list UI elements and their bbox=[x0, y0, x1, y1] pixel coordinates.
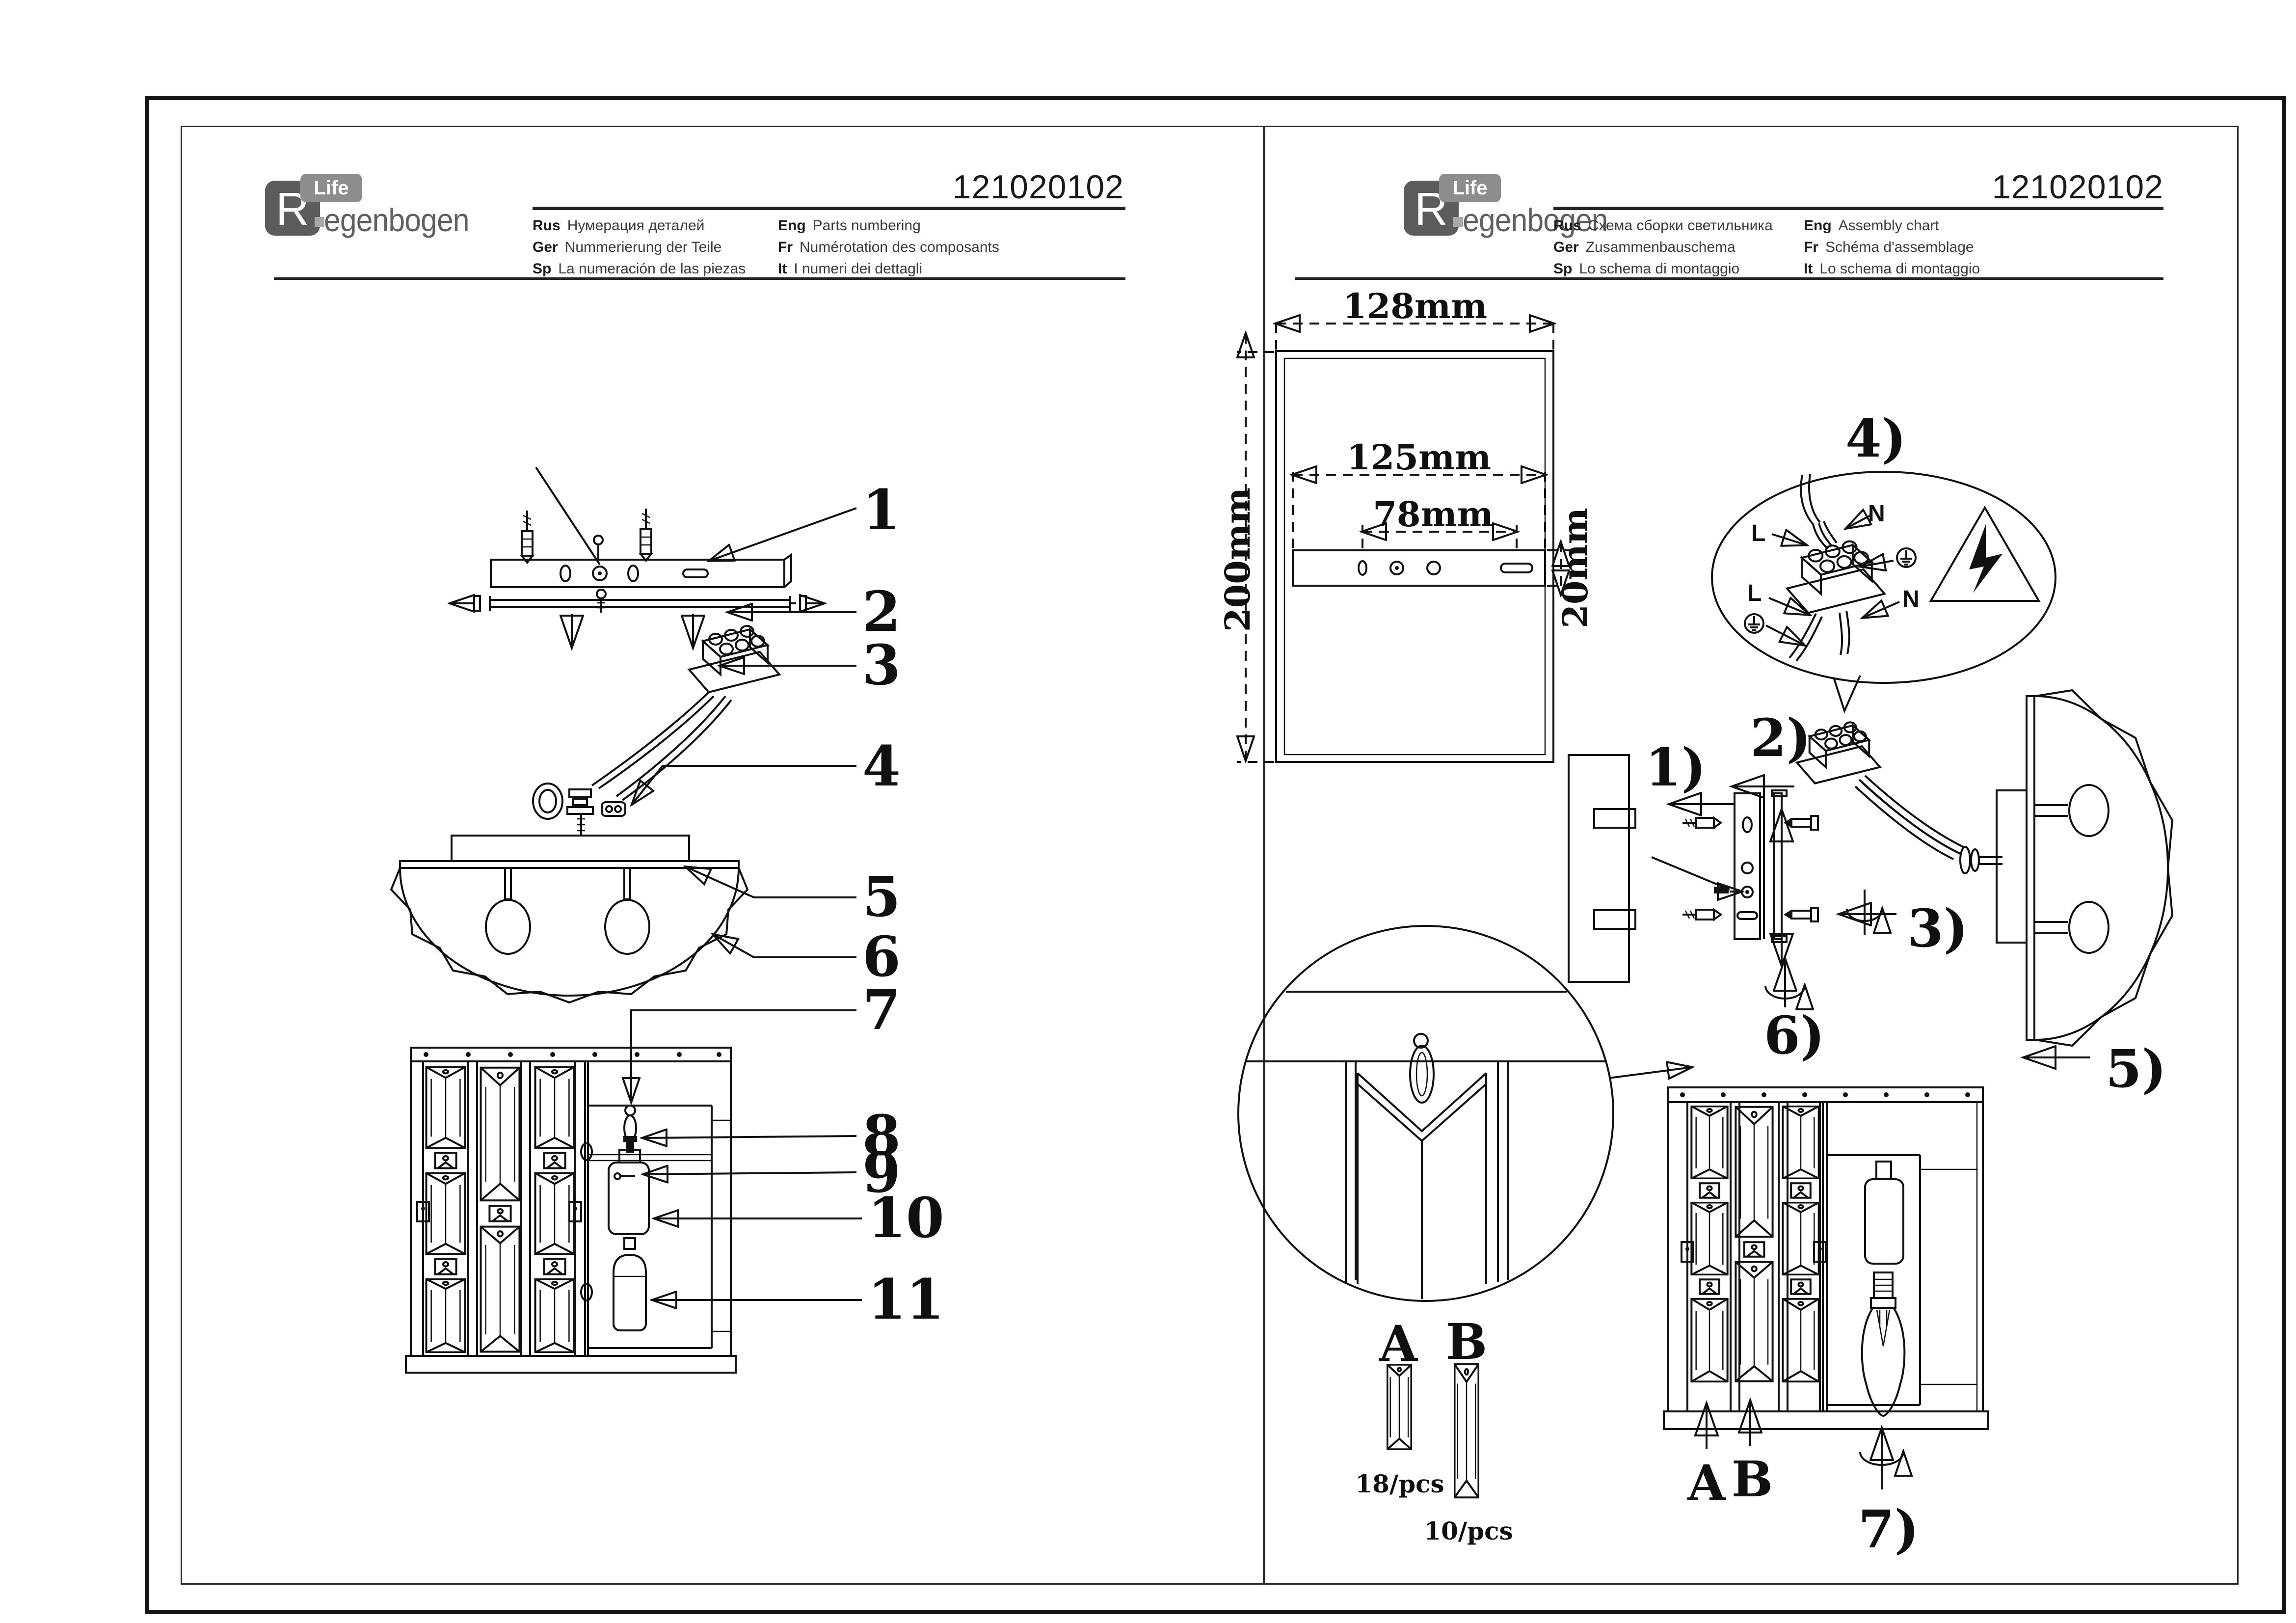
part-label-5: 5 bbox=[862, 865, 901, 929]
step-label-4: 4) bbox=[1845, 407, 1906, 469]
crystal-samples: A B 18/pcs 10/pcs bbox=[1355, 1313, 1513, 1545]
dim-hole-spacing: 78mm bbox=[1373, 494, 1494, 535]
step-screw-top bbox=[1784, 816, 1818, 830]
earth-symbol-top bbox=[1897, 548, 1916, 567]
crystal-b-label: B bbox=[1446, 1313, 1488, 1371]
lamp-front-view-right: A B 7) bbox=[1664, 1087, 1988, 1560]
dim-width: 128mm bbox=[1343, 286, 1487, 326]
step-label-6: 6) bbox=[1764, 1004, 1825, 1066]
part6-glass-dome bbox=[391, 868, 748, 1002]
step-label-5: 5) bbox=[2106, 1038, 2166, 1099]
dim-bar-height: 20mm bbox=[1555, 508, 1596, 628]
part-label-10: 10 bbox=[868, 1186, 944, 1250]
screw-pointer-line bbox=[1652, 857, 1730, 890]
view-b-label: B bbox=[1732, 1450, 1773, 1508]
wire-live-bottom: L bbox=[1747, 580, 1762, 606]
instruction-document: R Life egenbogen 121020102 RusНумерация … bbox=[0, 0, 2296, 1623]
lamp-front-view-left bbox=[406, 1048, 736, 1373]
step-label-7: 7) bbox=[1858, 1498, 1919, 1560]
part11-bulb bbox=[614, 1238, 646, 1330]
part-label-4: 4 bbox=[862, 734, 901, 799]
high-voltage-warning bbox=[1931, 508, 2039, 601]
part7-hanger-ring bbox=[625, 1106, 635, 1115]
earth-symbol-bottom bbox=[1745, 614, 1763, 633]
dim-height: 200mm bbox=[1217, 487, 1258, 632]
view-a-label: A bbox=[1687, 1454, 1726, 1512]
wall-bracket-plate bbox=[1735, 793, 1764, 939]
crystal-a-sample bbox=[1388, 1365, 1412, 1449]
step-label-2: 2) bbox=[1750, 707, 1811, 768]
lamp-keyhole-plate bbox=[1772, 790, 1787, 964]
diagram-art: 1 2 3 4 5 6 7 8 9 10 11 128mm bbox=[0, 0, 2296, 1623]
dimension-drawing: 128mm 200mm 125mm 78mm 20mm bbox=[1217, 286, 1596, 762]
crystal-b-count: 10/pcs bbox=[1424, 1516, 1513, 1545]
part-label-11: 11 bbox=[868, 1268, 944, 1332]
step-label-3: 3) bbox=[1907, 897, 1968, 959]
exploded-view: 1 2 3 4 5 6 7 8 9 10 11 bbox=[391, 467, 944, 1373]
part-label-3: 3 bbox=[862, 633, 901, 698]
dim-bracket-width: 125mm bbox=[1347, 437, 1491, 478]
wire-live-top: L bbox=[1751, 520, 1765, 546]
wire-neutral-bottom: N bbox=[1902, 586, 1920, 612]
wire-neutral-top: N bbox=[1868, 501, 1885, 527]
wall-section bbox=[1569, 755, 1629, 982]
part3-terminal-block bbox=[689, 626, 779, 692]
part2-screws-bar bbox=[451, 596, 824, 646]
part10-socket-cover bbox=[609, 1150, 649, 1234]
step-screw-bottom bbox=[1784, 908, 1818, 921]
step-anchor-top bbox=[1682, 818, 1721, 828]
step-label-1: 1) bbox=[1645, 736, 1706, 798]
part4-connector-set bbox=[533, 784, 625, 837]
wall-anchor-right bbox=[641, 509, 651, 561]
lamp-side-view: 5) bbox=[1997, 690, 2172, 1099]
part-label-1: 1 bbox=[862, 478, 901, 542]
part5-canopy bbox=[400, 836, 739, 868]
supply-wires bbox=[592, 692, 731, 800]
part9-socket-screw bbox=[614, 1173, 635, 1179]
candle-bulb bbox=[1862, 1272, 1905, 1416]
step-anchor-bottom bbox=[1682, 910, 1721, 920]
crystal-b-sample bbox=[1455, 1364, 1479, 1497]
wiring-detail-balloon: 4) N L L N bbox=[1712, 407, 2056, 711]
mounting-steps: 1) 2) bbox=[1569, 707, 2002, 1066]
keyhole-pointer-line bbox=[536, 467, 600, 565]
wall-anchor-left bbox=[522, 511, 533, 563]
crystal-a-count: 18/pcs bbox=[1355, 1469, 1444, 1498]
balloon-terminal-block bbox=[1787, 541, 1885, 613]
part-label-7: 7 bbox=[862, 978, 901, 1042]
